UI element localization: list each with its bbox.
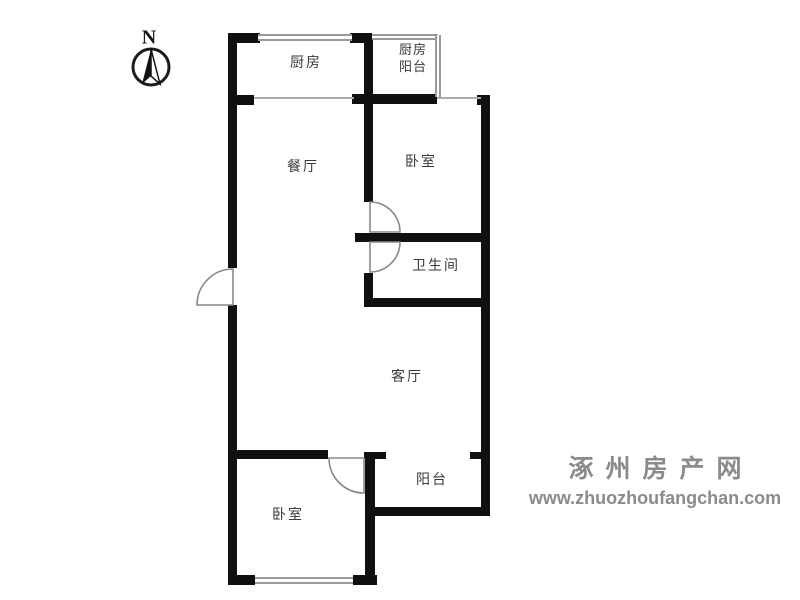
- room-label-living: 客厅: [391, 366, 423, 386]
- room-label-kitchen-balcony-line2: 阳台: [399, 58, 427, 75]
- room-label-bedroom-top: 卧室: [405, 151, 437, 171]
- room-label-bathroom: 卫生间: [412, 255, 460, 275]
- watermark-site-name: 涿州房产网: [520, 449, 790, 485]
- watermark: 涿州房产网 www.zhuozhoufangchan.com: [520, 449, 790, 509]
- door-arc-bedroom-bottom: [329, 458, 364, 493]
- floorplan-canvas: N 厨房 厨房 阳台 餐厅 卧室: [0, 0, 800, 600]
- room-label-dining: 餐厅: [287, 156, 319, 176]
- room-label-bedroom-bottom: 卧室: [272, 504, 304, 524]
- watermark-site-url: www.zhuozhoufangchan.com: [520, 488, 790, 509]
- room-label-kitchen-balcony: 厨房 阳台: [399, 41, 427, 75]
- door-arc-entrance: [197, 269, 233, 305]
- room-label-balcony: 阳台: [416, 469, 448, 489]
- door-arcs: [0, 0, 800, 600]
- door-arc-bathroom: [370, 242, 400, 272]
- door-arc-bedroom-top: [370, 202, 400, 232]
- room-label-kitchen: 厨房: [290, 52, 322, 72]
- room-label-kitchen-balcony-line1: 厨房: [399, 41, 427, 58]
